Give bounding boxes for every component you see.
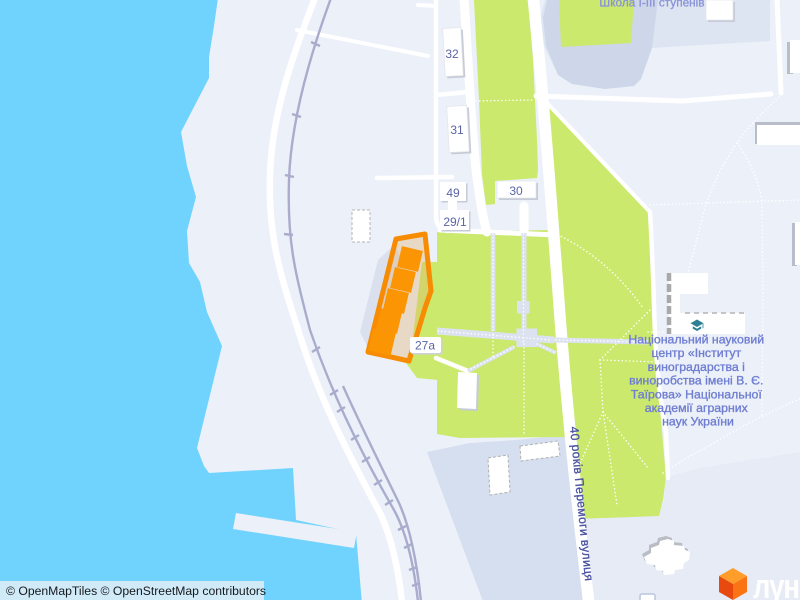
svg-text:32: 32	[445, 47, 459, 61]
svg-text:31: 31	[450, 123, 464, 137]
svg-text:49: 49	[446, 186, 460, 200]
svg-text:30: 30	[509, 184, 523, 198]
svg-text:лун: лун	[753, 567, 799, 600]
svg-text:© OpenMapTiles © OpenStreetMap: © OpenMapTiles © OpenStreetMap contribut…	[6, 584, 266, 598]
svg-text:Школа І-ІІІ ступенів: Школа І-ІІІ ступенів	[599, 0, 704, 10]
svg-text:29/1: 29/1	[443, 215, 467, 229]
svg-text:27a: 27a	[415, 339, 435, 353]
